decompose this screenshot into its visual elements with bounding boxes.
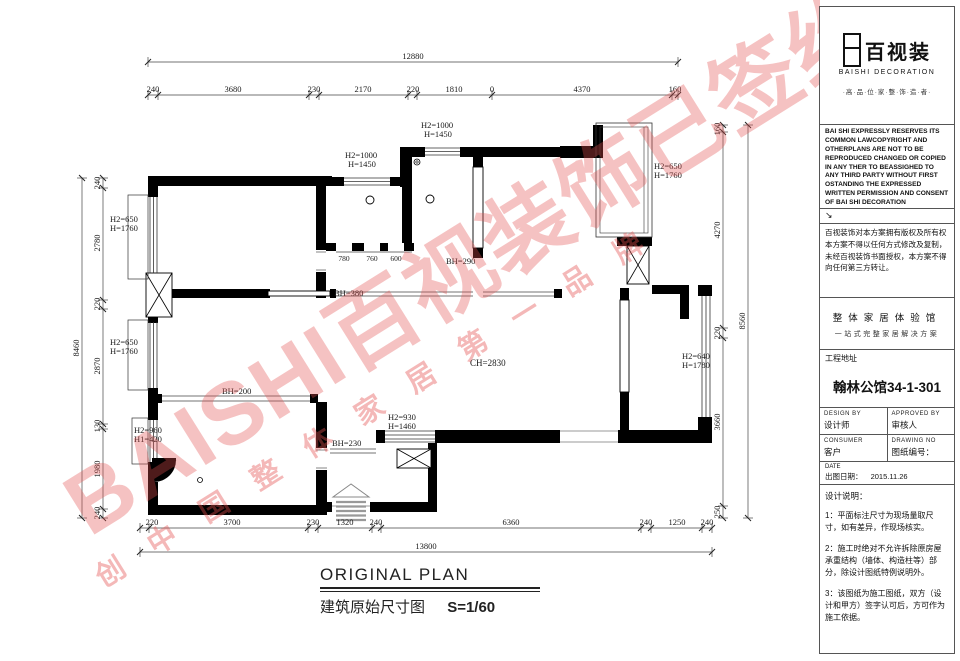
svg-text:2780: 2780: [92, 235, 102, 252]
design-by-label-en: DESIGN BY: [824, 411, 883, 417]
brand-name: 百视装: [865, 36, 931, 65]
svg-text:220: 220: [92, 298, 102, 311]
drawing-sheet: 12880 240 3680 230 2170 220 1810 0 4370 …: [0, 0, 960, 661]
drawing-title-cn: 建筑原始尺寸图 S=1/60: [320, 596, 540, 617]
svg-text:230: 230: [307, 517, 320, 527]
date-row: DATE 出图日期： 2015.11.26: [820, 462, 954, 485]
svg-text:2870: 2870: [92, 358, 102, 375]
dimension-ticks: [77, 57, 753, 557]
design-note-2: 2：施工时绝对不允许拆除原房屋承重结构（墙体、构造柱等）部分，除设计图纸特例说明…: [825, 543, 949, 579]
beam-label: BH=290: [446, 256, 475, 266]
consumer-row: CONSUMER 客户 DRAWING NO 图纸编号：: [820, 435, 954, 462]
beam-label: BH=200: [222, 386, 251, 396]
approved-by-label-en: APPROVED BY: [892, 411, 951, 417]
svg-text:230: 230: [308, 84, 321, 94]
experience-section: 整体家居体验馆 一站式完整家居解决方案: [820, 298, 954, 350]
svg-text:240: 240: [147, 84, 160, 94]
svg-text:220: 220: [146, 517, 159, 527]
window-label: H=1760: [110, 223, 138, 233]
svg-text:4370: 4370: [574, 84, 591, 94]
svg-text:760: 760: [366, 254, 378, 263]
experience-line2: 一站式完整家居解决方案: [825, 329, 949, 339]
baishi-logo-icon: [843, 33, 861, 67]
approved-by-cell: APPROVED BY 审核人: [888, 408, 955, 434]
drawing-no-cell: DRAWING NO 图纸编号：: [888, 435, 955, 461]
beam-label: BH=380: [334, 288, 363, 298]
drawing-title-cn-text: 建筑原始尺寸图: [320, 599, 425, 616]
window-label: H=1760: [110, 346, 138, 356]
svg-text:3700: 3700: [224, 517, 241, 527]
drawing-title-en: ORIGINAL PLAN: [320, 565, 540, 589]
dim-total-top: 12880: [402, 51, 423, 61]
drawing-scale: S=1/60: [447, 599, 495, 616]
copyright-chinese: 百视装饰对本方案拥有版权及所有权本方案不得以任何方式修改及复制，未经百视装饰书面…: [820, 224, 954, 298]
dim-total-right: 8560: [737, 313, 747, 330]
beam-lines: [162, 252, 554, 453]
svg-text:240: 240: [640, 517, 653, 527]
window-label: H=1460: [388, 421, 416, 431]
design-by-label-cn: 设计师: [824, 419, 883, 431]
drawing-title: ORIGINAL PLAN 建筑原始尺寸图 S=1/60: [320, 565, 540, 617]
experience-line1: 整体家居体验馆: [825, 310, 949, 324]
window-label: H=1760: [654, 170, 682, 180]
corner-arrow-icon: ↘: [820, 209, 954, 224]
brand-tagline: ·高·品·位·家·整·饰·造·者·: [825, 86, 949, 96]
svg-text:160: 160: [669, 84, 682, 94]
designer-row: DESIGN BY 设计师 APPROVED BY 审核人: [820, 408, 954, 435]
date-label-cn: 出图日期：: [825, 472, 863, 481]
design-by-cell: DESIGN BY 设计师: [820, 408, 888, 434]
window-label: H=1780: [682, 360, 710, 370]
svg-text:600: 600: [390, 254, 402, 263]
svg-text:4270: 4270: [712, 222, 722, 239]
logo-section: 百视装 BAISHI DECORATION ·高·品·位·家·整·饰·造·者·: [820, 7, 954, 125]
consumer-label-en: CONSUMER: [824, 438, 883, 444]
project-address-label: 工程地址: [825, 353, 949, 364]
svg-text:3660: 3660: [712, 414, 722, 431]
svg-text:1810: 1810: [446, 84, 463, 94]
beam-label: BH=230: [332, 438, 361, 448]
consumer-label-cn: 客户: [824, 446, 883, 458]
svg-text:1320: 1320: [337, 517, 354, 527]
copyright-english: BAI SHI EXPRESSLY RESERVES ITS COMMON LA…: [820, 125, 954, 209]
svg-text:6360: 6360: [503, 517, 520, 527]
window-label: H1=420: [134, 434, 162, 444]
dim-total-bottom: 13800: [415, 541, 436, 551]
date-label-en: DATE: [825, 464, 949, 470]
svg-text:240: 240: [92, 177, 102, 190]
svg-text:1250: 1250: [669, 517, 686, 527]
svg-text:250: 250: [712, 506, 722, 519]
svg-text:0: 0: [490, 84, 494, 94]
design-notes-section: 设计说明： 1：平面标注尺寸为现场量取尺寸，如有差异，作现场核实。 2：施工时绝…: [820, 485, 954, 653]
svg-text:220: 220: [712, 327, 722, 340]
window-label: H=1450: [424, 129, 452, 139]
approved-by-label-cn: 审核人: [892, 419, 951, 431]
consumer-cell: CONSUMER 客户: [820, 435, 888, 461]
window-label: H=1450: [348, 159, 376, 169]
title-block: 百视装 BAISHI DECORATION ·高·品·位·家·整·饰·造·者· …: [819, 6, 955, 654]
design-note-1: 1：平面标注尺寸为现场量取尺寸，如有差异，作现场核实。: [825, 510, 949, 534]
svg-text:240: 240: [370, 517, 383, 527]
project-address-section: 工程地址 翰林公馆34-1-301: [820, 350, 954, 408]
floor-plan: 12880 240 3680 230 2170 220 1810 0 4370 …: [0, 0, 960, 661]
svg-text:240: 240: [92, 507, 102, 520]
svg-text:2170: 2170: [355, 84, 372, 94]
drawing-no-label-cn: 图纸编号：: [892, 446, 951, 458]
svg-text:160: 160: [712, 123, 722, 136]
drawing-no-label-en: DRAWING NO: [892, 438, 951, 444]
plan-symbols: [152, 159, 434, 520]
brand-name-en: BAISHI DECORATION: [825, 69, 949, 76]
svg-text:780: 780: [338, 254, 350, 263]
svg-text:220: 220: [407, 84, 420, 94]
project-address-value: 翰林公馆34-1-301: [825, 376, 949, 396]
title-rule: [320, 591, 540, 592]
svg-text:130: 130: [92, 420, 102, 433]
dim-total-left: 8460: [71, 340, 81, 357]
design-notes-title: 设计说明：: [825, 490, 949, 502]
date-value: 2015.11.26: [871, 472, 908, 481]
svg-text:1980: 1980: [92, 461, 102, 478]
svg-text:3680: 3680: [225, 84, 242, 94]
ceiling-height-label: CH=2830: [470, 358, 506, 368]
design-note-3: 3：该图纸为施工图纸，双方（设计和甲方）签字认可后，方可作为施工依据。: [825, 588, 949, 624]
